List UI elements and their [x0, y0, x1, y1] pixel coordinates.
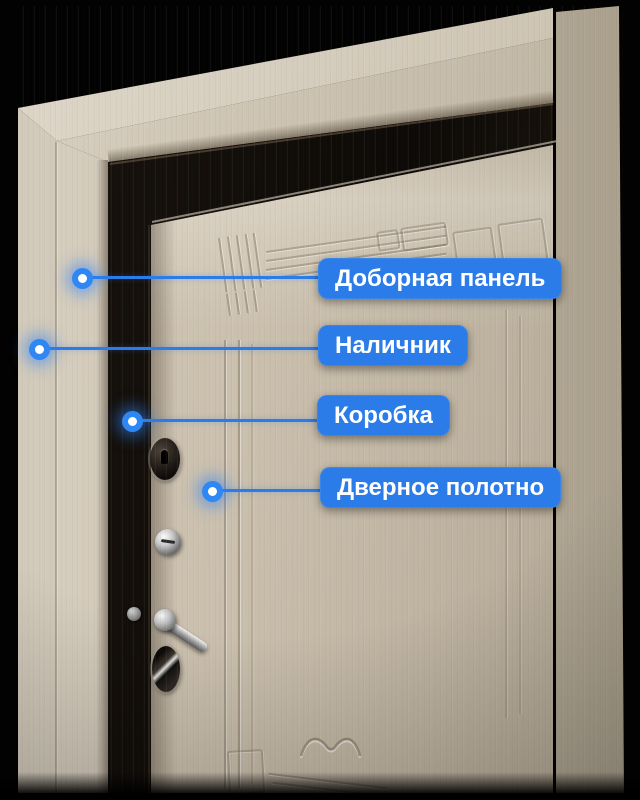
callout-label-door-leaf: Дверное полотно	[320, 467, 561, 508]
callout-dot-casing	[29, 339, 50, 360]
callout-label-extension-panel: Доборная панель	[318, 258, 562, 299]
photo-bottom-crop	[0, 793, 640, 800]
dot-center	[128, 417, 137, 426]
dot-center	[35, 345, 44, 354]
callout-dot-door-leaf	[202, 481, 223, 502]
callout-line-casing	[39, 347, 322, 350]
dot-center	[78, 274, 87, 283]
callout-line-frame-box	[132, 419, 321, 422]
door-parts-infographic: Доборная панель Наличник Коробка Дверное…	[0, 0, 640, 800]
callout-line-extension-panel	[82, 276, 322, 279]
dot-center	[208, 487, 217, 496]
callout-label-frame-box: Коробка	[317, 395, 450, 436]
callout-dot-frame-box	[122, 411, 143, 432]
callout-label-casing: Наличник	[318, 325, 468, 366]
callout-line-door-leaf	[212, 489, 324, 492]
callout-dot-extension-panel	[72, 268, 93, 289]
